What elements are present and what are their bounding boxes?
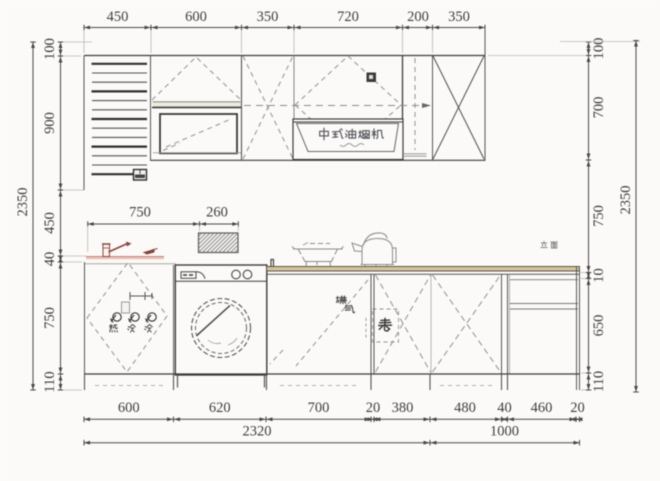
svg-text:260: 260	[206, 205, 228, 221]
svg-text:460: 460	[531, 400, 553, 416]
svg-text:2320: 2320	[243, 424, 272, 440]
svg-text:1000: 1000	[490, 424, 519, 440]
svg-text:700: 700	[591, 97, 607, 119]
svg-text:650: 650	[591, 315, 607, 337]
svg-text:350: 350	[448, 9, 470, 25]
svg-text:40: 40	[42, 252, 58, 267]
svg-text:2350: 2350	[15, 188, 31, 217]
svg-text:100: 100	[591, 38, 607, 60]
svg-text:110: 110	[42, 371, 58, 392]
svg-text:450: 450	[107, 9, 129, 25]
svg-text:700: 700	[308, 400, 330, 416]
svg-text:450: 450	[42, 212, 58, 234]
svg-text:480: 480	[454, 400, 476, 416]
svg-text:900: 900	[42, 112, 58, 134]
svg-text:750: 750	[129, 205, 151, 221]
svg-text:600: 600	[118, 400, 140, 416]
svg-text:720: 720	[337, 9, 359, 25]
svg-text:620: 620	[209, 400, 231, 416]
svg-text:750: 750	[42, 307, 58, 329]
svg-text:600: 600	[185, 9, 207, 25]
svg-text:20: 20	[366, 400, 381, 416]
svg-text:750: 750	[591, 205, 607, 227]
svg-text:380: 380	[392, 400, 414, 416]
svg-text:200: 200	[407, 9, 429, 25]
svg-text:2350: 2350	[618, 186, 634, 215]
svg-text:100: 100	[42, 38, 58, 60]
svg-text:20: 20	[570, 400, 585, 416]
svg-text:350: 350	[257, 9, 279, 25]
svg-text:110: 110	[591, 371, 607, 392]
svg-text:10: 10	[591, 268, 607, 283]
svg-text:40: 40	[497, 400, 512, 416]
